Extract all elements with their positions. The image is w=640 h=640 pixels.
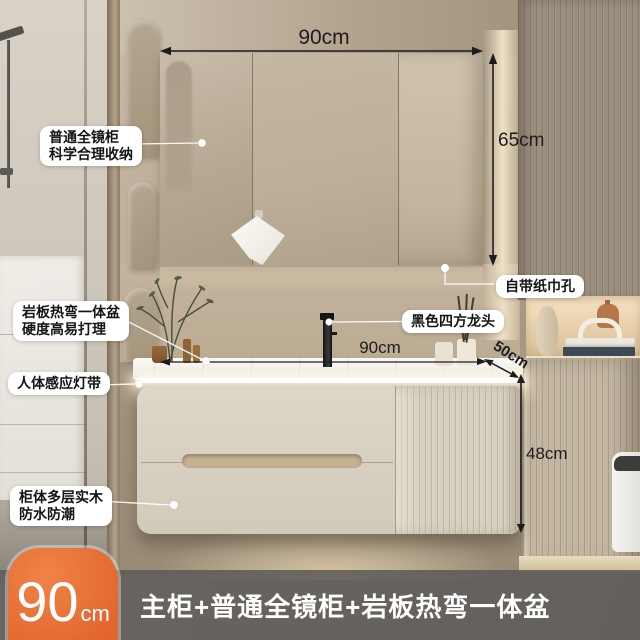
callout-line: 岩板热弯一体盆 xyxy=(22,304,120,321)
vanity-cabinet xyxy=(137,386,520,534)
shower-valve xyxy=(0,168,13,175)
plant-branches xyxy=(130,268,235,364)
callout-line: 自带纸巾孔 xyxy=(505,278,575,295)
vanity-fluted-door xyxy=(395,386,520,534)
callout-line: 科学合理收纳 xyxy=(49,146,133,163)
toilet-lid xyxy=(614,456,640,471)
callout-tissue-hole: 自带纸巾孔 xyxy=(496,275,584,298)
led-light-strip xyxy=(135,378,523,383)
badge-size-number: 90 xyxy=(16,574,78,630)
banner-title: 主柜+普通全镜柜+岩板热弯一体盆 xyxy=(140,587,550,624)
shower-pole xyxy=(7,40,10,188)
mirror-door-right xyxy=(398,53,483,265)
callout-mirror-cabinet: 普通全镜柜 科学合理收纳 xyxy=(40,126,142,166)
bathroom-vanity-product-photo: 90cm 65cm 90cm 50cm 48cm 普通全镜柜 科学合理收纳 岩板… xyxy=(0,0,640,640)
callout-line: 人体感应灯带 xyxy=(17,375,101,392)
mirror-seam xyxy=(398,53,399,265)
diffuser-bottle xyxy=(457,339,476,366)
cream-bottle xyxy=(435,342,453,366)
callout-stone-basin: 岩板热弯一体盆 硬度高易打理 xyxy=(13,301,129,341)
niche-vase xyxy=(536,306,558,356)
callout-sensor-light: 人体感应灯带 xyxy=(8,372,110,395)
dim-mirror-height-label: 65cm xyxy=(498,130,544,152)
badge-size-unit: cm xyxy=(80,601,109,627)
faucet-handle xyxy=(332,332,337,335)
mirror-reflection xyxy=(166,61,192,191)
callout-line: 黑色四方龙头 xyxy=(411,313,495,330)
black-faucet xyxy=(323,316,332,367)
callout-line: 防水防潮 xyxy=(19,506,103,523)
arch-mirror-decor xyxy=(128,182,156,270)
dim-cabinet-height-label: 48cm xyxy=(526,444,568,464)
callout-line: 硬度高易打理 xyxy=(22,321,120,338)
stacked-book-bottom xyxy=(563,347,635,356)
callout-faucet: 黑色四方龙头 xyxy=(402,310,504,333)
callout-line: 普通全镜柜 xyxy=(49,129,133,146)
cabinet-seam xyxy=(0,424,86,425)
dim-top-width-label: 90cm xyxy=(298,26,349,50)
cabinet-seam xyxy=(0,472,86,473)
stacked-book-top xyxy=(565,338,635,347)
mirror-cabinet xyxy=(160,53,483,267)
callout-line: 柜体多层实木 xyxy=(19,489,103,506)
callout-cabinet-material: 柜体多层实木 防水防潮 xyxy=(10,486,112,526)
drawer-handle-groove xyxy=(182,454,362,468)
faucet-spout xyxy=(320,313,334,320)
size-badge: 90 cm xyxy=(8,548,118,640)
dim-counter-width-label: 90cm xyxy=(359,338,401,358)
